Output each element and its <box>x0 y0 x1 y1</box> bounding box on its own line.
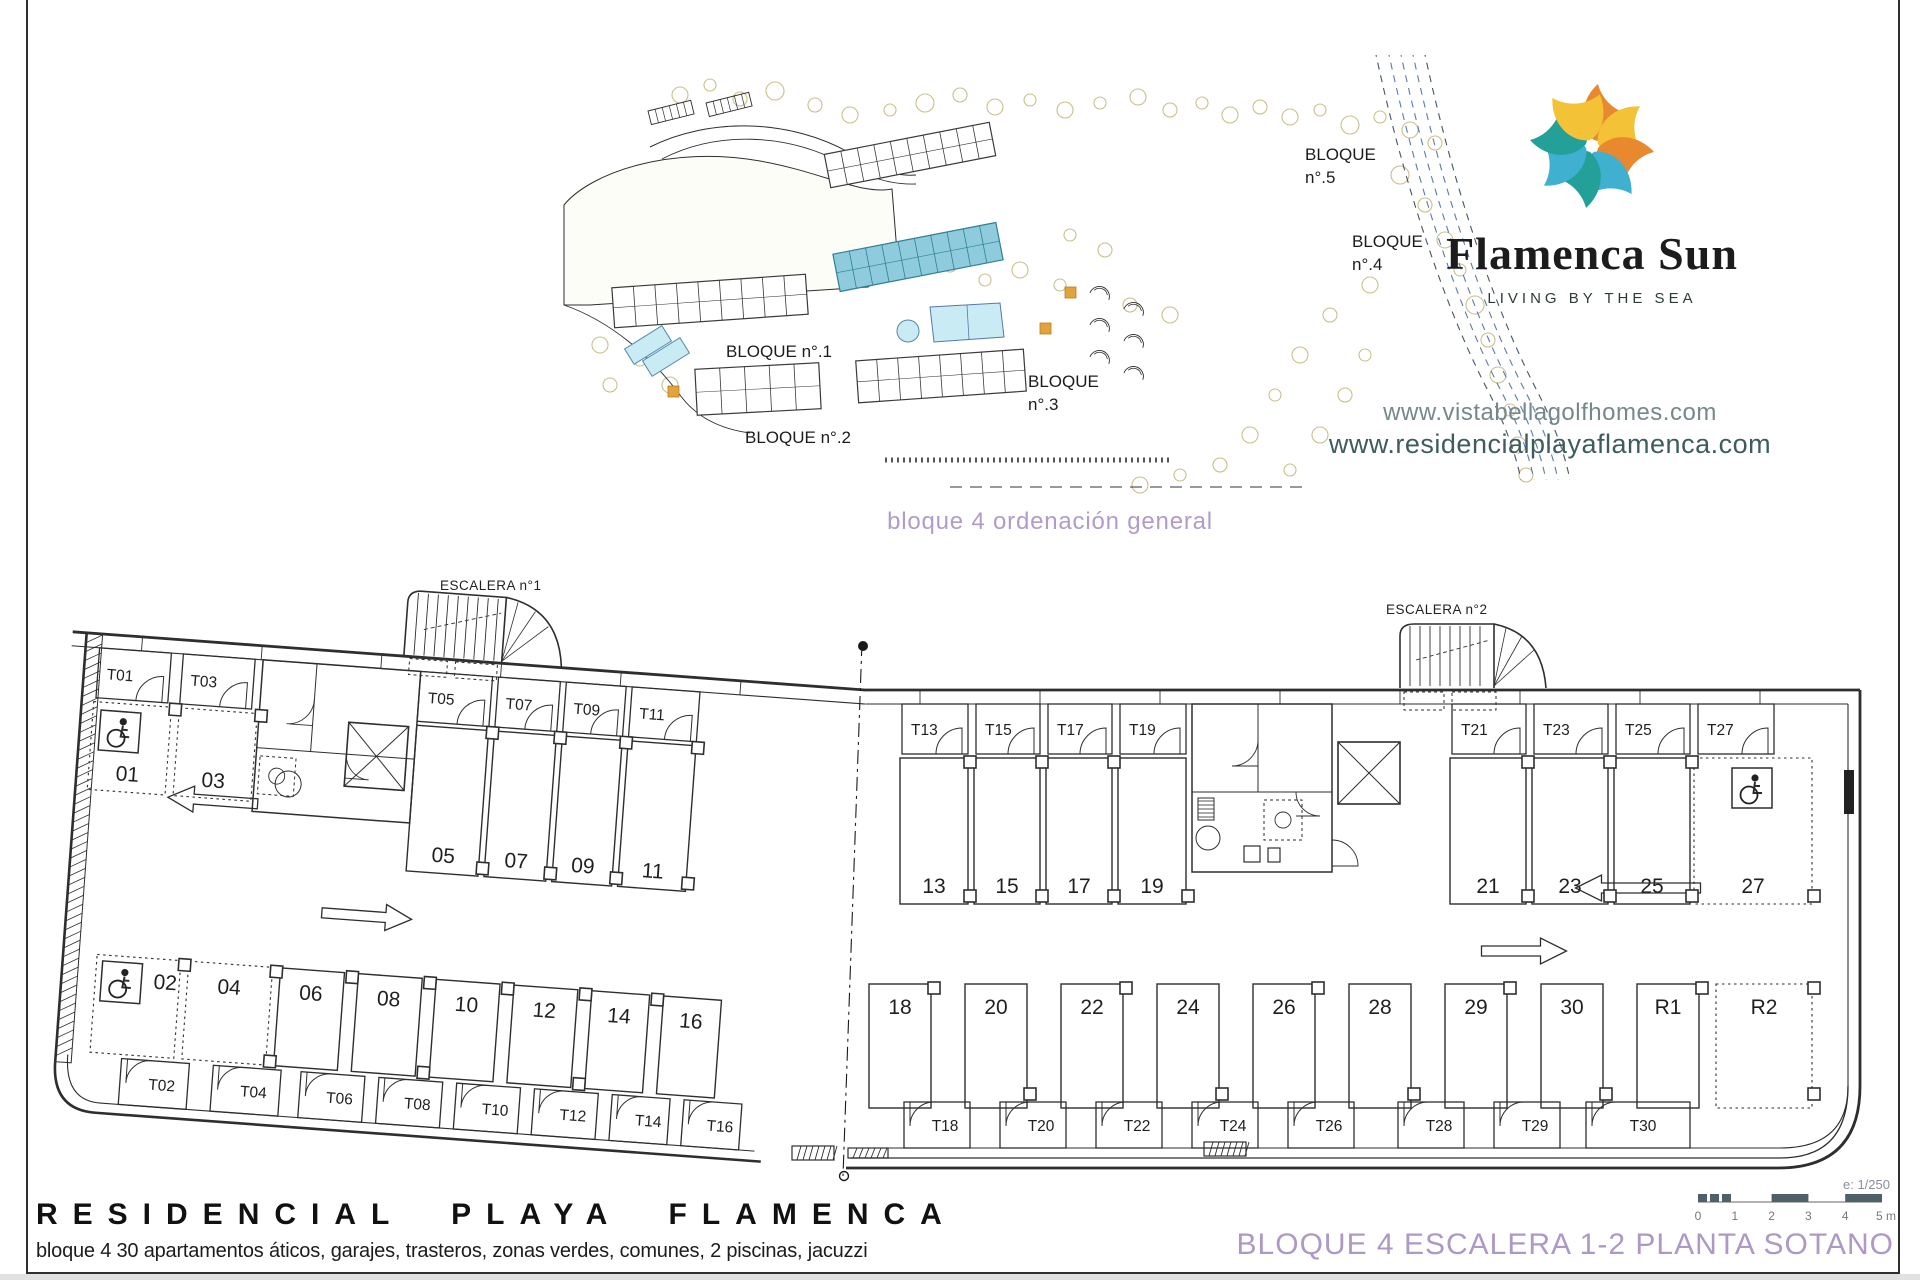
storage-room-T15: T15 <box>976 704 1040 754</box>
storage-room-label: T10 <box>481 1101 509 1120</box>
parking-stall-number: R1 <box>1655 996 1682 1019</box>
svg-text:0: 0 <box>1695 1209 1702 1223</box>
right-wing: T13T15T17T19T21T23T25T271315171921232527… <box>792 624 1860 1168</box>
parking-stall-06: 06 <box>273 968 344 1070</box>
parking-stall-number: 20 <box>984 996 1007 1019</box>
storage-room-T20: T20 <box>1000 1102 1066 1148</box>
svg-text:4: 4 <box>1842 1209 1849 1223</box>
storage-room-label: T13 <box>911 722 938 739</box>
parking-stall-19: 19 <box>1118 758 1186 904</box>
parking-stall-number: 29 <box>1464 996 1487 1019</box>
parking-stall-13: 13 <box>900 758 968 904</box>
floor-plan-drawing: T01T03T05T07T09T110103050709110204060810… <box>38 566 1860 1181</box>
storage-room-label: T08 <box>403 1095 431 1114</box>
parking-stall-20: 20 <box>965 984 1027 1108</box>
storage-room-T19: T19 <box>1120 704 1186 754</box>
parking-stall-number: 01 <box>115 762 140 787</box>
storage-room-T08: T08 <box>376 1077 443 1128</box>
storage-room-T28: T28 <box>1398 1102 1464 1148</box>
storage-room-T30: T30 <box>1586 1102 1690 1148</box>
parking-stall-number: 14 <box>607 1004 632 1029</box>
storage-room-label: T16 <box>706 1118 734 1137</box>
parking-stall-number: 28 <box>1368 996 1391 1019</box>
storage-room-label: T17 <box>1057 722 1084 739</box>
parking-stall-number: 21 <box>1476 875 1499 898</box>
parking-stall-number: 15 <box>995 875 1018 898</box>
parking-stall-number: 24 <box>1176 996 1200 1019</box>
parking-stall-04: 04 <box>182 961 273 1065</box>
parking-stall-17: 17 <box>1046 758 1112 904</box>
handicap-icon <box>1732 768 1772 808</box>
parking-stall-10: 10 <box>429 979 500 1081</box>
storage-room-label: T23 <box>1543 722 1570 739</box>
handicap-icon <box>98 710 141 753</box>
parking-stall-01: 01 <box>87 702 171 795</box>
parking-stall-02: 02 <box>90 954 181 1058</box>
parking-stall-30: 30 <box>1541 984 1603 1108</box>
storage-room-T12: T12 <box>531 1089 598 1140</box>
storage-room-T18: T18 <box>904 1102 970 1148</box>
storage-room-T22: T22 <box>1096 1102 1162 1148</box>
parking-stall-number: 22 <box>1080 996 1103 1019</box>
sheet-title: BLOQUE 4 ESCALERA 1-2 PLANTA SOTANO <box>1237 1228 1894 1262</box>
parking-stall-28: 28 <box>1349 984 1411 1108</box>
parking-stall-21: 21 <box>1450 758 1526 904</box>
parking-stall-number: 07 <box>504 849 529 874</box>
drive-direction-arrow <box>1576 875 1701 901</box>
parking-stall-29: 29 <box>1445 984 1507 1108</box>
ramp-hatch <box>1204 1142 1249 1156</box>
parking-stall-number: R2 <box>1751 996 1778 1019</box>
parking-stall-number: 03 <box>201 769 226 794</box>
parking-stall-25: 25 <box>1614 758 1690 904</box>
storage-room-T25: T25 <box>1616 704 1690 754</box>
storage-room-T26: T26 <box>1288 1102 1354 1148</box>
utility-rooms-1 <box>252 660 421 823</box>
scale-note: e: 1/250 <box>1843 1177 1890 1192</box>
svg-text:1: 1 <box>1731 1209 1738 1223</box>
storage-room-T13: T13 <box>902 704 968 754</box>
storage-room-T11: T11 <box>629 687 700 742</box>
parking-stall-24: 24 <box>1157 984 1219 1108</box>
storage-room-T07: T07 <box>495 677 560 731</box>
svg-text:3: 3 <box>1805 1209 1812 1223</box>
storage-room-label: T24 <box>1220 1118 1247 1135</box>
parking-stall-number: 18 <box>888 996 911 1019</box>
parking-stall-number: 10 <box>454 993 479 1018</box>
storage-room-label: T26 <box>1316 1118 1343 1135</box>
storage-room-T06: T06 <box>298 1072 365 1123</box>
parking-stall-number: 26 <box>1272 996 1295 1019</box>
storage-room-label: T28 <box>1426 1118 1453 1135</box>
storage-room-T10: T10 <box>453 1083 520 1134</box>
floor-plan: ESCALERA n°1 ESCALERA n°2 T01T03T05T07T0… <box>0 0 1920 1280</box>
parking-stall-16: 16 <box>656 996 721 1098</box>
storage-room-label: T02 <box>148 1077 176 1096</box>
parking-stall-22: 22 <box>1061 984 1123 1108</box>
storage-room-label: T12 <box>559 1107 587 1126</box>
escalera2-label: ESCALERA n°2 <box>1386 602 1487 617</box>
handicap-icon <box>100 961 143 1004</box>
plan-sheet-page: BLOQUE n°.5 BLOQUE n°.4 BLOQUE n°.1 BLOQ… <box>0 0 1920 1280</box>
parking-stall-number: 11 <box>641 859 664 884</box>
storage-room-T24: T24 <box>1192 1102 1258 1148</box>
drive-direction-arrow <box>1482 938 1567 964</box>
parking-stall-number: 04 <box>217 975 242 1000</box>
parking-stall-number: 16 <box>678 1009 703 1034</box>
elevator-shaft <box>344 722 409 790</box>
parking-stall-23: 23 <box>1532 758 1608 904</box>
storage-room-label: T06 <box>326 1090 354 1109</box>
storage-room-label: T30 <box>1630 1118 1657 1135</box>
storage-room-label: T03 <box>190 673 218 692</box>
ramp-hatch <box>848 1148 888 1158</box>
storage-room-label: T25 <box>1625 722 1652 739</box>
storage-room-label: T09 <box>573 701 601 720</box>
parking-stall-number: 06 <box>298 981 323 1006</box>
parking-stall-number: 17 <box>1067 875 1090 898</box>
storage-room-label: T18 <box>932 1118 959 1135</box>
storage-room-T17: T17 <box>1048 704 1112 754</box>
storage-room-T04: T04 <box>210 1065 281 1116</box>
parking-stall-number: 09 <box>570 854 595 879</box>
parking-stall-number: 30 <box>1560 996 1583 1019</box>
parking-stall-26: 26 <box>1253 984 1315 1108</box>
utility-rooms-2 <box>1192 704 1358 872</box>
door-mark <box>1844 770 1854 814</box>
stairs-escalera-2 <box>1400 624 1546 710</box>
parking-stall-number: 19 <box>1140 875 1163 898</box>
parking-stall-number: 05 <box>431 844 456 869</box>
storage-room-label: T22 <box>1124 1118 1151 1135</box>
parking-stall-number: 25 <box>1640 875 1663 898</box>
section-split-line <box>840 641 869 1181</box>
storage-room-label: T05 <box>427 690 455 709</box>
parking-stall-11: 11 <box>618 741 697 892</box>
parking-stall-12: 12 <box>507 985 578 1087</box>
parking-stall-number: 12 <box>532 999 557 1024</box>
storage-room-T01: T01 <box>96 648 171 703</box>
storage-room-label: T20 <box>1028 1118 1055 1135</box>
svg-text:5 m: 5 m <box>1876 1209 1896 1223</box>
storage-room-T03: T03 <box>180 654 255 709</box>
parking-stall-number: 27 <box>1741 875 1764 898</box>
storage-room-label: T15 <box>985 722 1012 739</box>
parking-stall-08: 08 <box>351 974 422 1076</box>
storage-room-T02: T02 <box>118 1059 189 1110</box>
storage-room-label: T21 <box>1461 722 1488 739</box>
parking-stall-15: 15 <box>974 758 1040 904</box>
parking-stall-14: 14 <box>585 991 650 1093</box>
elevator-shaft <box>1338 742 1400 804</box>
left-wing: T01T03T05T07T09T110103050709110204060810… <box>38 566 872 1167</box>
storage-room-label: T19 <box>1129 722 1156 739</box>
parking-stall-09: 09 <box>552 736 623 886</box>
storage-room-T14: T14 <box>609 1095 670 1145</box>
escalera1-label: ESCALERA n°1 <box>440 578 541 593</box>
storage-room-T27: T27 <box>1698 704 1774 754</box>
storage-room-label: T07 <box>505 696 533 715</box>
parking-stall-27: 27 <box>1694 758 1812 904</box>
storage-room-label: T11 <box>639 706 666 725</box>
storage-room-T09: T09 <box>563 682 627 736</box>
parking-stall-R2: R2 <box>1716 984 1812 1108</box>
storage-room-label: T04 <box>239 1083 267 1102</box>
svg-text:2: 2 <box>1768 1209 1775 1223</box>
storage-room-T16: T16 <box>681 1100 742 1150</box>
storage-room-T21: T21 <box>1452 704 1526 754</box>
parking-stall-number: 02 <box>153 971 178 996</box>
parking-stall-number: 08 <box>376 987 401 1012</box>
parking-stall-number: 13 <box>922 875 945 898</box>
project-subtitle: bloque 4 30 apartamentos áticos, garajes… <box>36 1240 867 1263</box>
parking-stall-R1: R1 <box>1637 984 1699 1108</box>
parking-stall-07: 07 <box>484 731 557 881</box>
parking-stall-18: 18 <box>869 984 931 1108</box>
storage-room-label: T14 <box>634 1112 662 1131</box>
project-title: RESIDENCIAL PLAYA FLAMENCA <box>36 1198 957 1232</box>
storage-room-T29: T29 <box>1494 1102 1560 1148</box>
storage-room-label: T01 <box>106 666 134 685</box>
parking-stall-05: 05 <box>406 725 488 876</box>
scale-bar: e: 1/250 0 1 2 3 4 5 m <box>1690 1176 1910 1228</box>
drive-direction-arrow <box>321 900 413 933</box>
storage-room-label: T29 <box>1522 1118 1549 1135</box>
parking-stall-03: 03 <box>173 708 257 801</box>
ramp-hatch <box>792 1146 837 1160</box>
storage-room-label: T27 <box>1707 722 1734 739</box>
storage-room-T23: T23 <box>1534 704 1608 754</box>
